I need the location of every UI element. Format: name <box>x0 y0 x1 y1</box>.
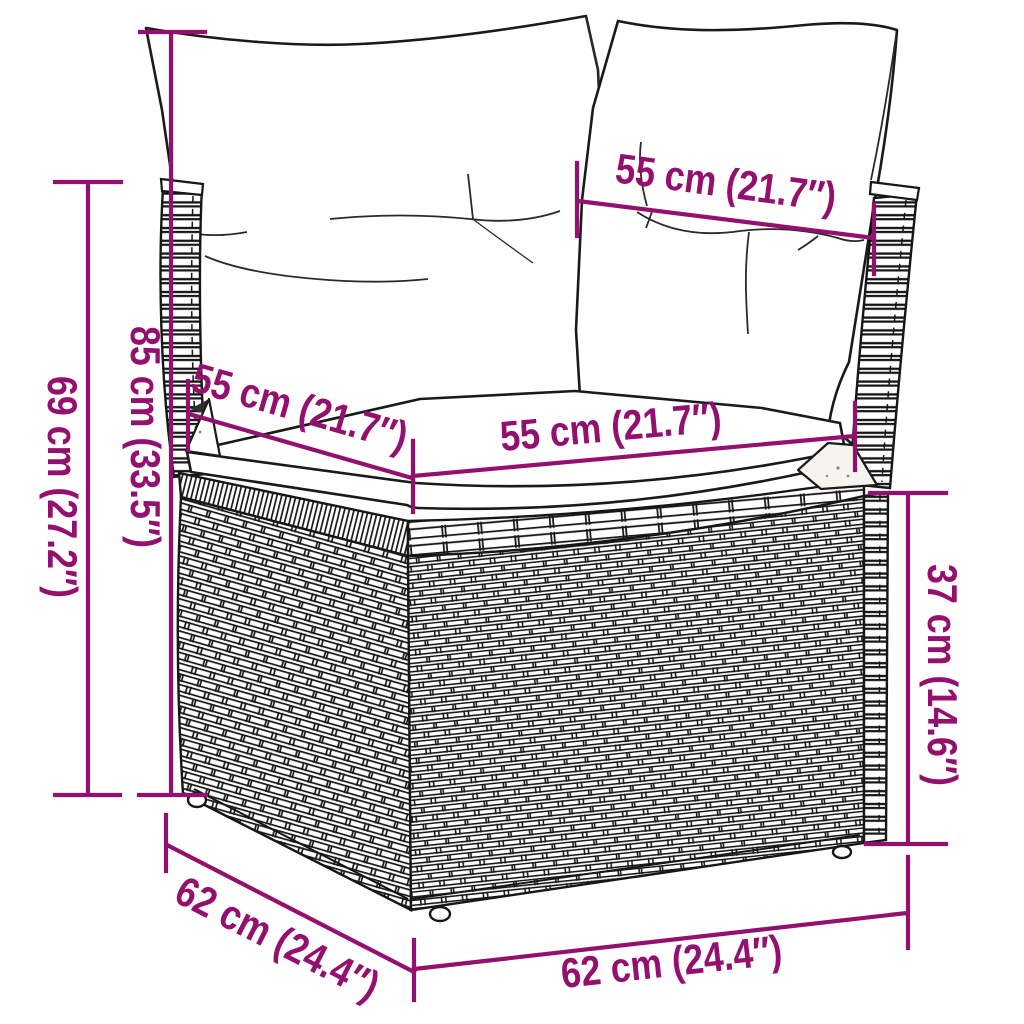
svg-text:85 cm (33.5″): 85 cm (33.5″) <box>122 326 169 548</box>
svg-text:69 cm (27.2″): 69 cm (27.2″) <box>39 376 86 598</box>
svg-text:37 cm (14.6″): 37 cm (14.6″) <box>919 564 966 786</box>
